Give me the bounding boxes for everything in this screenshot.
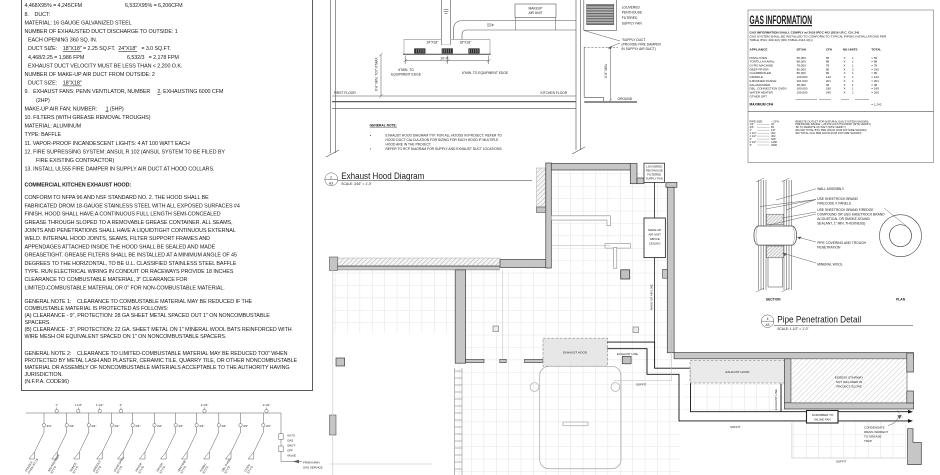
svg-text:FINISH. HOOD SHALL HAVE A CON: FINISH. HOOD SHALL HAVE A CONTINUOUS FUL…	[25, 212, 221, 218]
svg-text:4,468X95% = 4,245CFM: 4,468X95% = 4,245CFM	[25, 3, 83, 9]
svg-text:MINERAL WOOL: MINERAL WOOL	[817, 263, 843, 267]
svg-text:WIRE MESH OR EQUIVALENT SPACED: WIRE MESH OR EQUIVALENT SPACED ON 1" ON …	[25, 334, 227, 340]
svg-text:PLAN: PLAN	[896, 298, 906, 302]
svg-text:3/4": 3/4"	[178, 424, 183, 428]
svg-text:KITCHEN FLOOR: KITCHEN FLOOR	[541, 91, 568, 95]
svg-text:ABOVE: ABOVE	[650, 237, 660, 241]
svg-text:OFF: OFF	[287, 449, 293, 453]
svg-text:CONFORM TO NFPA 96 AND NSF STA: CONFORM TO NFPA 96 AND NSF STANDARD NO. …	[25, 195, 210, 201]
svg-text:Pipe Penetration Detail: Pipe Penetration Detail	[777, 315, 861, 326]
svg-text:3/4": 3/4"	[266, 424, 271, 428]
svg-text:PENETRATION: PENETRATION	[817, 245, 841, 249]
svg-text:SECTION: SECTION	[766, 298, 781, 302]
svg-text:WELD. INTERNAL HOOD JOINTS, S: WELD. INTERNAL HOOD JOINTS, SEAMS, FILTE…	[25, 236, 211, 242]
svg-text:EXHAUST LINE: EXHAUST LINE	[774, 389, 778, 410]
svg-text:FILTERED: FILTERED	[647, 174, 661, 177]
svg-text:DRAIN INDIRECT: DRAIN INDIRECT	[864, 430, 889, 434]
svg-text:USE SHEETROCK BRAND: USE SHEETROCK BRAND	[817, 197, 858, 201]
svg-text:3/4": 3/4"	[243, 424, 248, 428]
svg-text:3/4": 3/4"	[114, 424, 119, 428]
svg-text:18"X18": 18"X18"	[459, 41, 472, 45]
svg-text:TABLE IPGC 402.4(2) (IRC TABLE: TABLE IPGC 402.4(2) (IRC TABLE 2413.4(1)…	[750, 38, 813, 42]
svg-text:(A) CLEARANCE - 9", PROTECTION: (A) CLEARANCE - 9", PROTECTION: 28 GA SH…	[25, 313, 271, 319]
svg-text:VALVE: VALVE	[287, 454, 296, 458]
svg-text:1 1/4": 1 1/4"	[75, 403, 82, 407]
svg-text:3/4": 3/4"	[199, 424, 204, 428]
svg-text:APPENDAGES ATTACHED INSIDE THE: APPENDAGES ATTACHED INSIDE THE HOOD SHAL…	[25, 244, 216, 250]
svg-text:GAS SERVICE: GAS SERVICE	[303, 465, 323, 469]
svg-text:EXHAUST HOOD: EXHAUST HOOD	[563, 350, 588, 354]
svg-text:TOTAL: TOTAL	[871, 48, 881, 52]
svg-text:NUMBER OF EXHAUSTED DUCT DISCH: NUMBER OF EXHAUSTED DUCT DISCHARGE TO OU…	[25, 29, 178, 35]
svg-text:BTU/H: BTU/H	[797, 48, 807, 52]
svg-text:SOFFIT: SOFFIT	[836, 460, 847, 464]
svg-text:= 1,242: = 1,242	[871, 102, 881, 106]
svg-text:2-1/2": 2-1/2"	[263, 403, 271, 407]
svg-text:MAKEUP: MAKEUP	[529, 7, 544, 11]
svg-text:12. FIRE SUPRESSING SYSTEM:: 12. FIRE SUPRESSING SYSTEM: ANSUL R 102 …	[25, 149, 226, 155]
svg-text:GROUND: GROUND	[618, 97, 633, 101]
svg-text:TYPE. RUN ELECTRICAL WIRING I: TYPE. RUN ELECTRICAL WIRING IN CONDUIT O…	[25, 269, 234, 275]
svg-text:1 1/2": 1 1/2"	[96, 403, 103, 407]
svg-text:(B) CLEARANCE - 3", PROTECTION: (B) CLEARANCE - 3", PROTECTION: 22 GA. S…	[25, 327, 292, 333]
svg-text:3/4": 3/4"	[221, 424, 226, 428]
svg-text:PROJECT SCOPE: PROJECT SCOPE	[836, 385, 861, 389]
svg-text:4,468/2.25 = 1,986 FPM: 4,468/2.25 = 1,986 FPM	[28, 55, 85, 61]
svg-text:LOUVERED: LOUVERED	[622, 5, 641, 9]
svg-text:PROTECTED BY METAL LASH AND PL: PROTECTED BY METAL LASH AND PLASTER, CER…	[25, 358, 298, 364]
svg-text:MATERIAL OR ASSEMBLY OF NONCO: MATERIAL OR ASSEMBLY OF NONCOMBUSTABLE M…	[25, 365, 290, 371]
svg-text:INLINE FAN: INLINE FAN	[814, 418, 830, 422]
svg-text:USE SHEETROCK BRAND FIREDGE: USE SHEETROCK BRAND FIREDGE	[817, 208, 874, 212]
svg-text:MATERIAL: 16 GAUGE GALVANIZED: MATERIAL: 16 GAUGE GALVANIZED STEEL	[25, 20, 132, 26]
svg-text:SPACERS.: SPACERS.	[25, 320, 51, 326]
svg-text:SHUT-: SHUT-	[287, 444, 296, 448]
svg-text:SOFFIT: SOFFIT	[636, 382, 647, 386]
svg-text:A3: A3	[765, 323, 769, 327]
svg-text:COMMERCIAL KITCHEN EXHAUST HOO: COMMERCIAL KITCHEN EXHAUST HOOD:	[25, 182, 132, 188]
svg-text:FIRECODE X PANELS: FIRECODE X PANELS	[817, 201, 852, 205]
svg-text:13. INSTALL UL555 FIRE DAMPER: 13. INSTALL UL555 FIRE DAMPER IN SUPPLY …	[25, 167, 215, 173]
svg-text:EXHAUST HOOD: EXHAUST HOOD	[726, 370, 751, 374]
svg-text:MAKE-UP AIR FAN: NUMBER:: MAKE-UP AIR FAN: NUMBER: 1 (5HP)	[25, 106, 124, 112]
svg-text:ACOUSTICAL OR SMOKE-SOUND: ACOUSTICAL OR SMOKE-SOUND	[817, 217, 870, 221]
svg-text:9. EXHAUST FANS: PENN VENTI: 9. EXHAUST FANS: PENN VENTILATOR, NUMBER…	[25, 89, 224, 95]
svg-text:3/4": 3/4"	[135, 424, 140, 428]
svg-text:CFH: CFH	[826, 48, 833, 52]
svg-text:PENTHOUSE: PENTHOUSE	[646, 170, 663, 173]
svg-text:NO.UNITS: NO.UNITS	[843, 48, 858, 52]
svg-text:6,532/3 = 2,178 FPM: 6,532/3 = 2,178 FPM	[127, 55, 179, 61]
svg-text:400 TOTAL CFH PER HOUR (FOR FI: 400 TOTAL CFH PER HOUR (FOR FIXTURE SHOW…	[795, 131, 861, 135]
svg-text:24"X18": 24"X18"	[427, 41, 440, 45]
svg-text:HOOD DUCT CALCULATION FOR SIZI: HOOD DUCT CALCULATION FOR SIZING FOR EAC…	[386, 138, 500, 142]
svg-text:PENTHOUSE: PENTHOUSE	[622, 11, 643, 15]
svg-text:MAXIMUM CFH: MAXIMUM CFH	[750, 102, 774, 106]
svg-text:GAS INFORMATION: GAS INFORMATION	[750, 13, 813, 27]
svg-text:3": 3"	[750, 143, 752, 147]
svg-text:8'-6" MIN.: 8'-6" MIN.	[604, 63, 608, 78]
svg-text:EXHAUST HOOD DIAGRAM TYP. FOR: EXHAUST HOOD DIAGRAM TYP. FOR ALL HOODS …	[386, 133, 503, 137]
svg-text:X: X	[844, 91, 846, 95]
svg-text:CLEARANCE TO COMBUSTABLE MATER: CLEARANCE TO COMBUSTABLE MATERIAL, 3" CL…	[25, 277, 188, 283]
svg-text:240: 240	[826, 91, 831, 95]
svg-text:(2HP): (2HP)	[36, 98, 50, 104]
svg-text:GENERAL NOTE 1: CLEARANCE T: GENERAL NOTE 1: CLEARANCE TO COMBUSTABLE…	[25, 299, 253, 305]
svg-text:199,000: 199,000	[797, 91, 808, 95]
svg-text:6'-8" MIN. TO7'-0"MAX: 6'-8" MIN. TO7'-0"MAX	[375, 57, 379, 91]
svg-text:2": 2"	[120, 403, 123, 407]
svg-text:JURISDICTION.: JURISDICTION.	[25, 372, 63, 378]
svg-text:EXHAUST LINE: EXHAUST LINE	[617, 352, 638, 356]
svg-text:10. FILTERS (WITH GREASE REMO: 10. FILTERS (WITH GREASE REMOVAL TROUGHS…	[25, 115, 151, 121]
svg-text:TYPE: BAFFLE: TYPE: BAFFLE	[25, 132, 62, 138]
svg-text:DUCT SIZE: 18"X18": DUCT SIZE: 18"X18"	[28, 81, 82, 87]
svg-text:LIMITED-COMBUSTABLE MATERIAL O: LIMITED-COMBUSTABLE MATERIAL OR 0" FOR N…	[25, 285, 225, 291]
svg-text:3/4": 3/4"	[91, 424, 96, 428]
svg-text:EQUIPMENT EDGE: EQUIPMENT EDGE	[391, 73, 422, 77]
svg-text:LOUVERED: LOUVERED	[646, 166, 662, 169]
svg-text:= 200: = 200	[871, 91, 879, 95]
svg-text:SCALE: 1 1/2" = 1'-0": SCALE: 1 1/2" = 1'-0"	[777, 327, 809, 331]
svg-text:CEILING: CEILING	[649, 242, 661, 246]
svg-text:SCALE: 3/16" = 1'-0": SCALE: 3/16" = 1'-0"	[341, 182, 372, 186]
svg-text:GREASE THROUGH SLOPED TO A REM: GREASE THROUGH SLOPED TO A REMOVABLE GRE…	[25, 220, 234, 226]
svg-text:GENERAL NOTE 2: CLEARANCE T: GENERAL NOTE 2: CLEARANCE TO LIMITED-COM…	[25, 351, 288, 357]
svg-text:COMPOUND OR USG SHEETROCK BRAN: COMPOUND OR USG SHEETROCK BRAND	[817, 213, 885, 217]
svg-text:3/4": 3/4"	[157, 424, 162, 428]
svg-text:APPLIANCE: APPLIANCE	[750, 48, 768, 52]
svg-text:6"MIN. TO: 6"MIN. TO	[398, 68, 414, 72]
svg-text:SOFFIT: SOFFIT	[730, 425, 741, 429]
svg-text:2-1/2": 2-1/2"	[201, 403, 209, 407]
svg-text:2: 2	[330, 175, 332, 179]
svg-text:3/4": 3/4"	[69, 424, 74, 428]
svg-text:MAKE-UP: MAKE-UP	[648, 228, 661, 232]
svg-text:GAS: GAS	[287, 439, 293, 443]
svg-text:MATERIAL: ALUMINUM: MATERIAL: ALUMINUM	[25, 124, 82, 130]
svg-text:6,532X95% = 6,206CFM: 6,532X95% = 6,206CFM	[125, 3, 183, 9]
svg-text:11. VAPOR-PROOF INCANDESCENT: 11. VAPOR-PROOF INCANDESCENT LIGHTS: 4 A…	[25, 141, 190, 147]
svg-text:EGRESS STAIRWAY: EGRESS STAIRWAY	[835, 376, 863, 380]
svg-text:PIPE COVERING AND TROUGH: PIPE COVERING AND TROUGH	[817, 241, 866, 245]
svg-text:SCRUBBER TO: SCRUBBER TO	[812, 413, 834, 417]
svg-text:JOINTS AND PENETRATIONS SHALL: JOINTS AND PENETRATIONS SHALL HAVE A LIQ…	[25, 228, 236, 234]
svg-text:SEALANT, 1" MIN. THICKNESS): SEALANT, 1" MIN. THICKNESS)	[817, 222, 865, 226]
svg-text:MAKE-UP AIR LINE: MAKE-UP AIR LINE	[650, 284, 654, 310]
svg-text:FABRICATED DROM 18-GAUGE STAIN: FABRICATED DROM 18-GAUGE STAINLESS STEEL…	[25, 203, 240, 209]
svg-text:HOOD ARE IN THE PROJECT.: HOOD ARE IN THE PROJECT.	[386, 142, 432, 146]
svg-text:AIR UNIT: AIR UNIT	[528, 11, 542, 15]
svg-text:10'-4": 10'-4"	[440, 57, 449, 61]
svg-text:GENERAL NOTE:: GENERAL NOTE:	[370, 124, 397, 128]
svg-text:A3: A3	[329, 182, 333, 186]
svg-text:FROM MAIN: FROM MAIN	[303, 460, 320, 464]
svg-text:FIRST FLOOR: FIRST FLOOR	[334, 91, 356, 95]
svg-text:3/4": 3/4"	[47, 424, 52, 428]
svg-text:DUCT SIZE: 18"X18" = 2.25 S: DUCT SIZE: 18"X18" = 2.25 SQ.FT. 24"X18"…	[28, 46, 171, 52]
svg-text:IN SUPPLY AIR DUCT): IN SUPPLY AIR DUCT)	[622, 47, 656, 51]
svg-text:FIRE EXISTING CONTRACTOR): FIRE EXISTING CONTRACTOR)	[36, 158, 114, 164]
svg-text:AUTO: AUTO	[287, 434, 296, 438]
svg-text:EXHAUST DUCT VELOCITY MUST BE: EXHAUST DUCT VELOCITY MUST BE LESS THAN …	[28, 63, 182, 69]
svg-text:NOT INCLUDED IN: NOT INCLUDED IN	[836, 380, 862, 384]
svg-text:4: 4	[767, 317, 769, 321]
svg-text:EACH OPENING 360 SQ. IN.: EACH OPENING 360 SQ. IN.	[28, 38, 97, 44]
svg-text:"SUPPLY DUCT: "SUPPLY DUCT	[622, 38, 646, 42]
svg-text:2690: 2690	[771, 143, 777, 147]
svg-text:(N.F.P.A. CODE96): (N.F.P.A. CODE96)	[25, 379, 70, 385]
svg-text:WALL ASSEMBLY: WALL ASSEMBLY	[817, 187, 845, 191]
svg-text:SUPPLY FAN: SUPPLY FAN	[646, 178, 663, 181]
svg-text:GREASETIGHT. GREASE FILTERS S: GREASETIGHT. GREASE FILTERS SHALL BE INS…	[25, 253, 237, 259]
svg-text:6"MIN. TO EQUIPMENT EDGE: 6"MIN. TO EQUIPMENT EDGE	[462, 71, 509, 75]
svg-text:TO GREASE: TO GREASE	[864, 435, 881, 439]
svg-text:REFER TO RCP DIAGRAM FOR SUPPL: REFER TO RCP DIAGRAM FOR SUPPLY AND EXHA…	[386, 147, 503, 151]
svg-text:AIR UNIT: AIR UNIT	[649, 233, 662, 237]
svg-text:NUMBER OF MAKE-UP AIR DUCT FRO: NUMBER OF MAKE-UP AIR DUCT FROM OUTSIDE:…	[25, 72, 155, 78]
svg-text:8. DUCT:: 8. DUCT:	[25, 12, 50, 18]
svg-text:SUPPLY FAN: SUPPLY FAN	[622, 22, 643, 26]
svg-text:OTHER OPT.: OTHER OPT.	[750, 95, 768, 99]
svg-text:(PROVIDE FIRE DAMPER: (PROVIDE FIRE DAMPER	[622, 43, 662, 47]
svg-text:DEGREES TO THE HORIZONTAL, TO: DEGREES TO THE HORIZONTAL, TO BE U.L. CL…	[25, 261, 237, 267]
svg-text:COMBUSTABLE MATERIAL IS PROTEC: COMBUSTABLE MATERIAL IS PROTECTED AS FOL…	[25, 306, 169, 312]
svg-text:CONDENSATE: CONDENSATE	[864, 426, 885, 430]
svg-text:1": 1"	[55, 403, 58, 407]
svg-text:FILTERED: FILTERED	[622, 16, 638, 20]
svg-text:TRAP: TRAP	[864, 439, 872, 443]
